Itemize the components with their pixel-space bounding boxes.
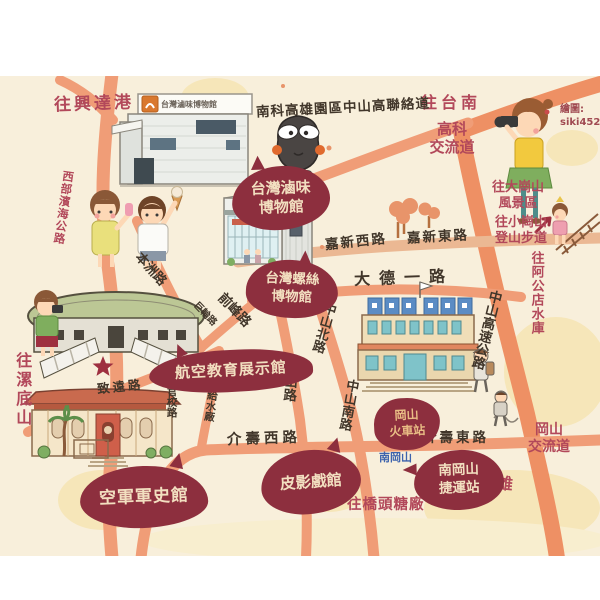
bottom-margin (0, 556, 600, 600)
direction-label-xiaogangshan: 往小崗山 登山步道 (490, 215, 552, 246)
luwei-building-sign-text: 台灣滷味博物館 (161, 99, 217, 110)
dot-3 (320, 245, 324, 249)
mrt-station-map-label: 南岡山 (379, 451, 412, 464)
bubble-tail (299, 250, 311, 263)
dot-2 (327, 146, 332, 151)
road-label-jiaxin-east: 嘉新東路 (407, 227, 470, 246)
direction-label-xingda-port: 往興達港 (54, 93, 135, 116)
tree-2 (419, 203, 441, 229)
direction-label-gaoke-interchange: 高科 交流道 (420, 120, 484, 156)
direction-label-qiaotou-sugar-factory: 往橋頭糖廠 (347, 497, 425, 514)
illustration-air-force-museum-building (24, 389, 180, 466)
map-credit: 繪圖: siki4520 (560, 103, 600, 129)
road-label-guanxiao: 官校路 (165, 386, 178, 418)
direction-label-agongdian-reservoir: 往阿公店水庫 (528, 251, 544, 335)
credit-handle: siki4520 (560, 117, 600, 128)
direction-label-tadishan: 往漯底山 (13, 352, 32, 428)
illustrated-gangshan-map: 往興達港 往台南 高科 交流道 繪圖: siki4520 往大崗山 風景區 往小… (0, 0, 600, 600)
credit-label: 繪圖: (560, 104, 584, 115)
road-label-jieshou-west: 介壽西路 (227, 430, 302, 450)
top-margin (0, 0, 600, 76)
dot-1 (281, 84, 285, 88)
illustration-train-station-building (358, 282, 478, 391)
direction-label-dagangshan: 往大崗山 風景區 (487, 180, 549, 211)
road-label-dade-1st: 大德一路 (354, 266, 455, 289)
bubble-tail (402, 463, 416, 475)
direction-label-gangshan-interchange: 岡山 交流道 (517, 422, 581, 456)
bubble-tail (251, 156, 265, 170)
